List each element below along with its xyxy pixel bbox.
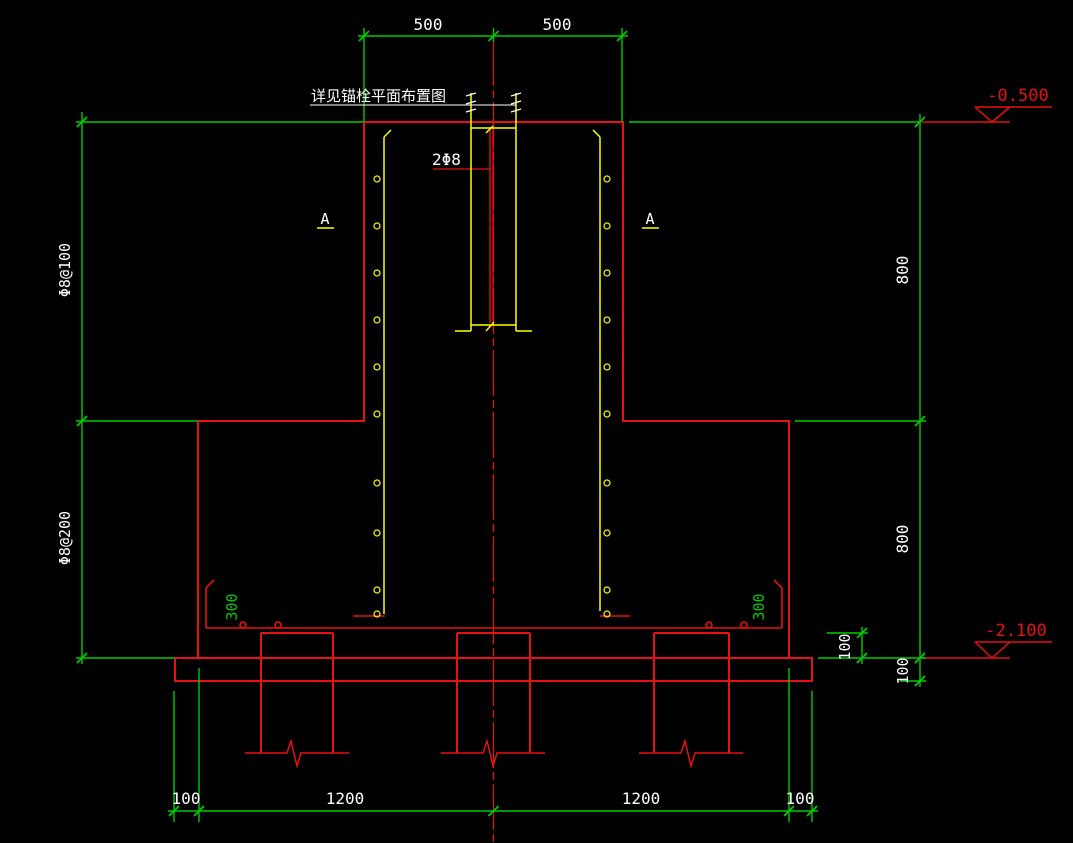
bottom-bar-dot: [741, 622, 747, 628]
pile-right-outline: [654, 633, 729, 753]
bottom-bar-dot: [240, 622, 246, 628]
elevation-bottom-value: -2.100: [985, 621, 1046, 641]
hook-right-label: 300: [750, 593, 768, 620]
dim-top-right: 500: [543, 15, 572, 34]
extension-lines-right: [629, 122, 926, 681]
dimension-ticks: [77, 31, 925, 816]
dim-bottom-edge-left: 100: [172, 789, 201, 808]
dim-right-upper: 800: [893, 256, 912, 285]
section-mark-right: A: [645, 210, 654, 228]
stirrup-dot: [374, 270, 380, 276]
dim-bottom-span-right: 1200: [622, 789, 661, 808]
elevation-symbol-top: [922, 107, 1052, 122]
two-phi8-bars: [490, 127, 493, 323]
stirrup-dot: [374, 530, 380, 536]
hook-left-label: 300: [223, 593, 241, 620]
stirrup-dot: [374, 317, 380, 323]
stirrup-dot: [604, 176, 610, 182]
extension-lines-left: [76, 122, 364, 658]
dim-pile-embed: 100: [836, 633, 854, 660]
dimension-lines: [76, 28, 926, 822]
stirrup-dot: [374, 176, 380, 182]
stirrup-dot: [604, 364, 610, 370]
pedestal-bar-right: [593, 130, 600, 611]
bottom-bar-dot: [275, 622, 281, 628]
stirrup-dot: [374, 480, 380, 486]
stirrup-dot: [604, 530, 610, 536]
section-mark-left: A: [320, 210, 329, 228]
stirrup-dot: [604, 317, 610, 323]
foundation-section-drawing: 详见锚栓平面布置图 500 500 2Φ8 A A Φ8@100 Φ8@200 …: [0, 0, 1073, 843]
stirrup-dots: [374, 176, 610, 617]
note-text: 详见锚栓平面布置图: [311, 87, 446, 105]
stirrup-dot: [604, 411, 610, 417]
dim-bottom-span-left: 1200: [326, 789, 365, 808]
stirrup-upper-label: Φ8@100: [56, 243, 74, 297]
stirrup-dot: [604, 270, 610, 276]
stirrup-dot: [604, 587, 610, 593]
cad-canvas: 详见锚栓平面布置图 500 500 2Φ8 A A Φ8@100 Φ8@200 …: [0, 0, 1073, 843]
stirrup-dot: [604, 223, 610, 229]
bottom-bar-dot: [706, 622, 712, 628]
pile-left-outline: [261, 633, 333, 753]
stirrup-lower-label: Φ8@200: [56, 511, 74, 565]
stirrup-dot: [374, 587, 380, 593]
dim-cushion: 100: [894, 657, 912, 684]
stirrup-dot: [374, 223, 380, 229]
pedestal-bar-left: [384, 130, 391, 614]
dim-top-left: 500: [414, 15, 443, 34]
stirrup-dot: [374, 411, 380, 417]
dim-right-lower: 800: [893, 525, 912, 554]
dim-bottom-edge-right: 100: [786, 789, 815, 808]
elevation-top-value: -0.500: [987, 86, 1048, 106]
elevation-symbols: [922, 107, 1052, 658]
elevation-symbol-bottom: [923, 642, 1052, 658]
bar-label: 2Φ8: [432, 150, 461, 169]
stirrup-dot: [374, 364, 380, 370]
stirrup-dot: [604, 480, 610, 486]
drawing-text: 详见锚栓平面布置图 500 500 2Φ8 A A Φ8@100 Φ8@200 …: [56, 15, 1049, 808]
